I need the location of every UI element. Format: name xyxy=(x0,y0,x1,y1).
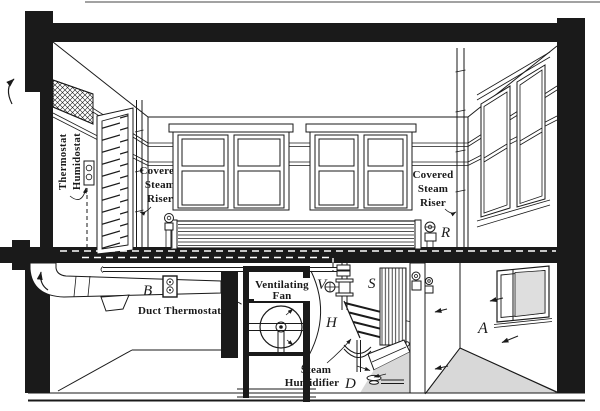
radiator xyxy=(171,220,421,249)
ventilating-fan-label-2: Fan xyxy=(273,290,292,302)
building-cross-section-diagram: Thermostat Humidostat Covered Steam Rise… xyxy=(0,0,600,411)
top-beam xyxy=(40,23,585,42)
mid-floor-slab xyxy=(0,247,585,263)
steam-humidifier-label-1: Steam xyxy=(301,364,331,376)
valve-letter-R: R xyxy=(440,225,450,241)
partition-wall xyxy=(221,272,238,358)
humidostat-label: Humidostat xyxy=(72,133,83,190)
letter-S: S xyxy=(368,276,376,292)
right-wall xyxy=(557,18,585,393)
svg-text:Steam: Steam xyxy=(145,179,175,191)
letter-A: A xyxy=(477,320,488,337)
duct-thermostat-device xyxy=(163,276,177,297)
letter-D: D xyxy=(344,376,356,392)
letter-H: H xyxy=(325,315,338,331)
thermostat-device xyxy=(84,161,94,185)
louvered-door xyxy=(97,108,133,254)
svg-text:Riser: Riser xyxy=(147,193,173,205)
window-unit-2 xyxy=(306,124,416,210)
figure-page: Thermostat Humidostat Covered Steam Rise… xyxy=(0,0,600,411)
svg-text:Covered: Covered xyxy=(413,169,454,181)
svg-text:Riser: Riser xyxy=(420,197,446,209)
steam-humidifier-label-2: Humidifier xyxy=(285,377,340,389)
letter-B: B xyxy=(143,283,152,299)
thermostat-label: Thermostat xyxy=(58,133,69,190)
window-unit-1 xyxy=(169,124,293,210)
svg-text:Steam: Steam xyxy=(418,183,448,195)
duct-thermostat-label: Duct Thermostat xyxy=(138,305,221,317)
